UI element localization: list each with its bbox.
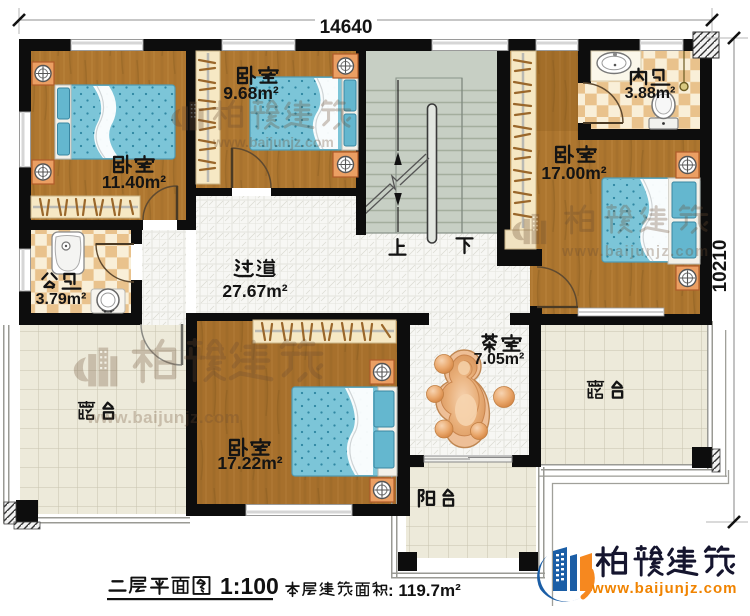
svg-text:1:100: 1:100: [220, 573, 279, 599]
svg-text:17.00m²: 17.00m²: [541, 163, 606, 183]
svg-text:www.baijunjz.com: www.baijunjz.com: [591, 580, 737, 597]
svg-text:3.88m²: 3.88m²: [625, 85, 676, 102]
svg-text:11.40m²: 11.40m²: [102, 172, 166, 192]
svg-text:10210: 10210: [710, 240, 731, 293]
svg-text:www.baijunjz.com: www.baijunjz.com: [86, 408, 240, 427]
svg-text:27.67m²: 27.67m²: [222, 281, 287, 301]
svg-text:www.baijunjz.com: www.baijunjz.com: [212, 134, 334, 150]
svg-text:3.79m²: 3.79m²: [36, 291, 87, 308]
svg-text:7.05m²: 7.05m²: [474, 351, 525, 368]
svg-text:17.22m²: 17.22m²: [217, 453, 282, 473]
svg-text:14640: 14640: [320, 17, 373, 38]
svg-text:: 119.7m²: : 119.7m²: [388, 581, 461, 600]
svg-text:www.baijunjz.com: www.baijunjz.com: [561, 244, 710, 260]
